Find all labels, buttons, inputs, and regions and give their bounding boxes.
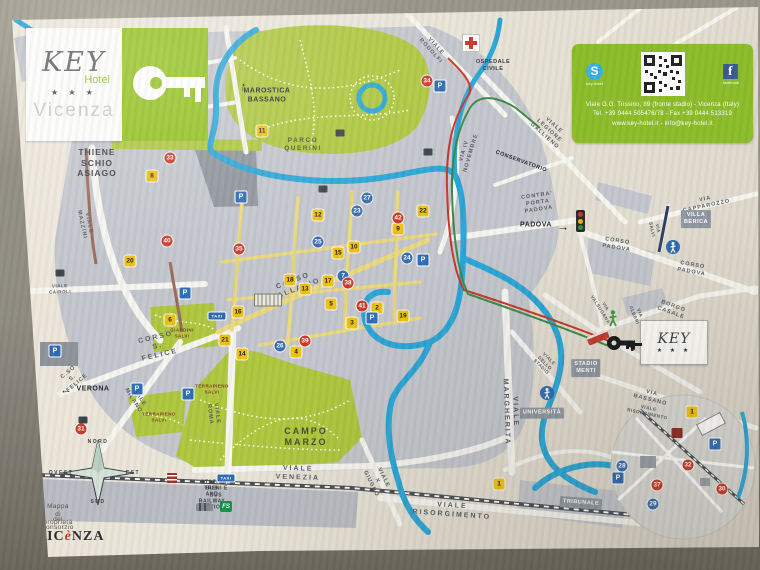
logo-stars: ★ ★ ★ bbox=[51, 88, 97, 97]
map-marker-42: 42 bbox=[393, 213, 404, 224]
map-label: VIALE VENEZIA bbox=[276, 464, 321, 483]
map-marker-1: 1 bbox=[494, 479, 505, 490]
map-marker-34: 34 bbox=[422, 76, 433, 87]
map-marker-18: 18 bbox=[285, 275, 296, 286]
parking-icon: P bbox=[434, 80, 447, 93]
map-marker-23: 23 bbox=[352, 206, 363, 217]
pedestrian-icon bbox=[540, 386, 554, 400]
map-label: THIENE SCHIO ASIAGO bbox=[77, 147, 117, 179]
building-icon bbox=[254, 294, 282, 307]
parking-icon: P bbox=[131, 383, 144, 396]
walking-person-icon bbox=[606, 310, 620, 328]
vlogo-accent: è bbox=[65, 529, 72, 544]
map-marker-15: 15 bbox=[333, 248, 344, 259]
building-icon bbox=[79, 417, 88, 424]
parking-icon: P bbox=[182, 388, 195, 401]
logo-city: Vicenza bbox=[33, 100, 114, 122]
facebook-label: facebook bbox=[723, 80, 739, 85]
map-marker-17: 17 bbox=[323, 276, 334, 287]
pedestrian-icon bbox=[666, 240, 680, 254]
map-label: OSPEDALE CIVILE bbox=[476, 59, 510, 73]
map-label: TERRAPIENO SALVI bbox=[195, 383, 229, 394]
map-label: CONTRA' PORTA PADOVA bbox=[521, 191, 555, 216]
skype-block: S key-hotel bbox=[586, 63, 603, 86]
key-icon bbox=[122, 28, 208, 141]
map-marker-30: 30 bbox=[717, 484, 728, 495]
map-marker-29: 29 bbox=[648, 499, 659, 510]
map-marker-22: 22 bbox=[418, 206, 429, 217]
map-marker-12: 12 bbox=[313, 210, 324, 221]
map-marker-14: 14 bbox=[237, 349, 248, 360]
taxi-sign: TAXI bbox=[217, 474, 236, 483]
map-marker-1: 1 bbox=[687, 407, 698, 418]
map-marker-20: 20 bbox=[125, 256, 136, 267]
map-label: PADOVA bbox=[520, 222, 552, 231]
traffic-light-icon bbox=[576, 210, 585, 232]
hotel-location-flag: KEY ★ ★ ★ bbox=[640, 320, 708, 365]
map-marker-40: 40 bbox=[162, 236, 173, 247]
parking-icon: P bbox=[612, 472, 625, 485]
map-marker-39: 39 bbox=[300, 336, 311, 347]
hotel-contact-card: S key-hotel bbox=[572, 44, 753, 143]
flag-brand: KEY bbox=[658, 331, 691, 347]
map-label: VILLA BERICA bbox=[681, 210, 711, 228]
map-label: MAROSTICA BASSANO bbox=[244, 87, 291, 105]
map-marker-19: 19 bbox=[398, 311, 409, 322]
map-label: CAMPO MARZO bbox=[284, 426, 328, 449]
map-label: NORD bbox=[88, 439, 109, 445]
map-label: VIALE CAIROLI bbox=[49, 283, 71, 295]
map-marker-31: 31 bbox=[76, 424, 87, 435]
qr-code bbox=[641, 52, 685, 96]
map-marker-8: 8 bbox=[147, 171, 158, 182]
map-marker-37: 37 bbox=[652, 480, 663, 491]
map-label: → bbox=[557, 220, 569, 235]
map-marker-38: 38 bbox=[343, 278, 354, 289]
vicenza-consortium-logo: VICèNZA bbox=[36, 529, 104, 545]
map-marker-16: 16 bbox=[233, 307, 244, 318]
map-label: VIALE MARGHERITA bbox=[500, 378, 520, 445]
map-marker-21: 21 bbox=[220, 335, 231, 346]
map-label: TERRAPIENO SALVI bbox=[142, 411, 176, 422]
logo-sub: Hotel bbox=[84, 74, 110, 86]
photo-of-city-map: THIENE SCHIO ASIAGO↑MAROSTICA BASSANOPAR… bbox=[0, 0, 760, 570]
building-icon bbox=[56, 270, 65, 277]
map-label: STADIO MENTI bbox=[571, 359, 600, 377]
parking-icon: P bbox=[417, 254, 430, 267]
facebook-block: f facebook bbox=[723, 64, 739, 85]
map-marker-33: 33 bbox=[165, 153, 176, 164]
logo-text-panel: KEY Hotel ★ ★ ★ Vicenza bbox=[26, 28, 122, 141]
map-marker-35: 35 bbox=[234, 244, 245, 255]
map-label: ← bbox=[60, 383, 72, 398]
train-icon bbox=[196, 503, 213, 511]
logo-key-panel bbox=[122, 28, 208, 141]
map-marker-41: 41 bbox=[357, 301, 368, 312]
map-marker-4: 4 bbox=[291, 347, 302, 358]
map-marker-24: 24 bbox=[402, 253, 413, 264]
flag-arrow-line bbox=[633, 343, 642, 346]
map-marker-26: 26 bbox=[275, 341, 286, 352]
map-marker-27: 27 bbox=[362, 193, 373, 204]
bus-terminal-icon bbox=[167, 473, 177, 483]
map-label: VERONA bbox=[77, 386, 110, 395]
vlogo-post: NZA bbox=[72, 529, 105, 544]
hotel-key-marker-icon bbox=[606, 332, 634, 354]
contact-address: Viale G.G. Trissino, 89 (fronte stadio) … bbox=[572, 101, 753, 110]
skype-label: key-hotel bbox=[586, 81, 603, 86]
map-label: OVEST bbox=[49, 470, 73, 476]
map-label: PARCO QUERINI bbox=[284, 137, 322, 153]
skype-icon: S bbox=[586, 63, 603, 80]
map-marker-10: 10 bbox=[349, 242, 360, 253]
map-poster: THIENE SCHIO ASIAGO↑MAROSTICA BASSANOPAR… bbox=[0, 0, 760, 570]
map-marker-5: 5 bbox=[326, 299, 337, 310]
hospital-cross-icon bbox=[462, 34, 480, 52]
map-label: SUD bbox=[90, 499, 105, 505]
map-label: UNIVERSITÀ bbox=[520, 408, 564, 419]
map-label: VIALE ROMA bbox=[205, 403, 221, 426]
facebook-icon: f bbox=[723, 64, 738, 79]
map-marker-25: 25 bbox=[313, 237, 324, 248]
parking-icon: P bbox=[366, 312, 379, 325]
taxi-sign: TAXI bbox=[208, 312, 227, 321]
map-label: EST bbox=[126, 470, 140, 476]
map-marker-3: 3 bbox=[347, 318, 358, 329]
parking-icon: P bbox=[709, 438, 722, 451]
key-hotel-logo: KEY Hotel ★ ★ ★ Vicenza bbox=[26, 28, 208, 141]
contact-web: www.key-hotel.it - info@key-hotel.it bbox=[572, 120, 753, 129]
map-marker-9: 9 bbox=[393, 224, 404, 235]
contact-phone: Tel. +39 0444 505476/78 - Fax +39 0444 5… bbox=[572, 110, 753, 119]
parking-icon: P bbox=[179, 287, 192, 300]
flag-stars: ★ ★ ★ bbox=[657, 347, 691, 354]
fs-railway-logo: FS bbox=[220, 501, 232, 512]
map-marker-6: 6 bbox=[165, 315, 176, 326]
parking-icon: P bbox=[49, 345, 62, 358]
map-marker-32: 32 bbox=[683, 460, 694, 471]
building-icon bbox=[424, 149, 433, 156]
building-icon bbox=[336, 130, 345, 137]
vlogo-pre: VIC bbox=[36, 529, 65, 544]
building-icon bbox=[319, 186, 328, 193]
building-icon bbox=[672, 428, 683, 438]
map-marker-28: 28 bbox=[617, 461, 628, 472]
map-marker-13: 13 bbox=[300, 284, 311, 295]
map-marker-11: 11 bbox=[257, 126, 268, 137]
parking-icon: P bbox=[235, 191, 248, 204]
